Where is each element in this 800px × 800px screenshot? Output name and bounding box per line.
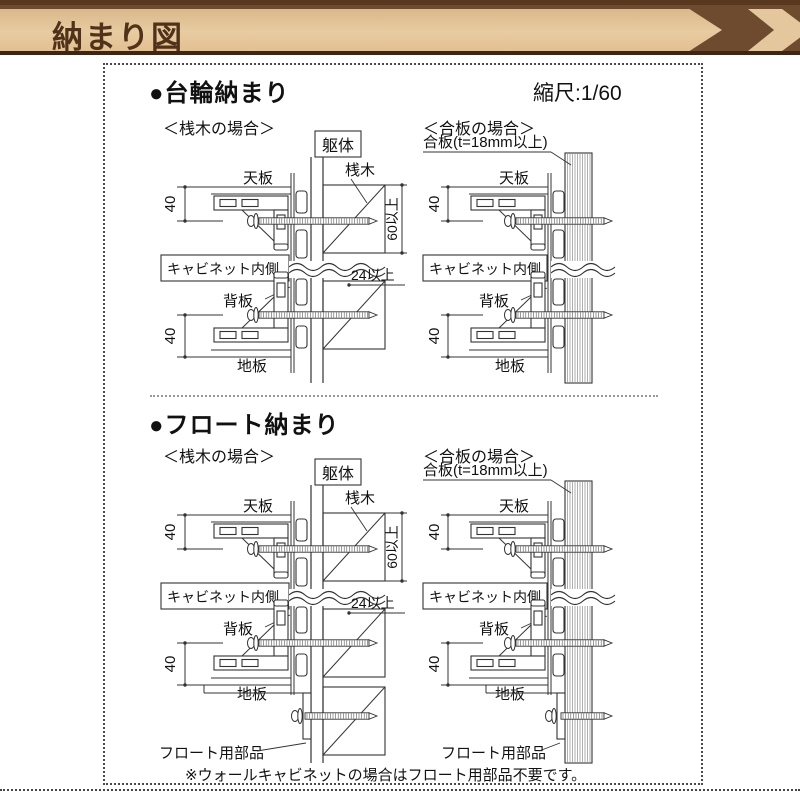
diagram-label: 60以上 — [384, 525, 400, 569]
diagram-label: キャビネット内側 — [429, 589, 541, 605]
plywood-wall — [565, 481, 592, 763]
top-panel: 天板 — [469, 497, 548, 522]
diagram-label: 天板 — [243, 169, 273, 187]
diagram-label: 躯体 — [322, 137, 354, 155]
bottom-panel: 地板 — [469, 678, 548, 703]
diagram-label: フロート用部品 — [159, 745, 264, 762]
diagram-label: 天板 — [499, 169, 529, 187]
diagram-label: 天板 — [243, 497, 273, 515]
diagram-label: 背板 — [479, 292, 509, 310]
diagram-label: キャビネット内側 — [167, 261, 279, 277]
top-panel: 天板 — [211, 497, 291, 522]
section-heading-float: ●フロート納まり — [149, 405, 340, 440]
screw — [248, 308, 378, 323]
diagram-label: フロート用部品 — [441, 745, 546, 762]
diagram-label: 地板 — [237, 357, 267, 375]
bottom-panel: 地板 — [211, 350, 291, 375]
float-part: フロート用部品 — [441, 685, 612, 762]
cabinet-inside-box: キャビネット内側 — [161, 583, 289, 609]
drawing-panel: ●台輪納まり 縮尺:1/60 ＜桟木の場合＞ ＜合板の場合＞ 天板40キャビネッ… — [103, 63, 703, 785]
banner-ribbon-arrow: 納まり図 — [0, 9, 722, 51]
kutai-box: 躯体 — [315, 131, 361, 157]
diagram-daiwa-gohan: 天板40キャビネット内側背板地板40合板(t=18mm以上) — [421, 129, 693, 387]
float-part: フロート用部品 — [159, 685, 377, 762]
diagram-label: 背板 — [479, 620, 509, 638]
header-banner: 納まり図 — [0, 0, 800, 55]
top-panel: 天板 — [211, 169, 291, 194]
diagram-label: 60以上 — [384, 197, 400, 241]
diagram-label: キャビネット内側 — [167, 589, 279, 605]
diagram-label: 桟木 — [345, 162, 375, 179]
diagram-label: 天板 — [499, 497, 529, 515]
wall-frame — [311, 485, 323, 763]
screw — [505, 636, 613, 651]
diagram-label: 躯体 — [322, 465, 354, 483]
diagram-label: 地板 — [495, 685, 525, 703]
cabinet-inside-box: キャビネット内側 — [161, 255, 289, 281]
top-panel: 天板 — [469, 169, 548, 194]
diagram-label: 40 — [162, 196, 179, 213]
cabinet-inside-box: キャビネット内側 — [423, 255, 547, 281]
bottom-panel: 地板 — [469, 350, 548, 375]
screw — [505, 542, 613, 557]
diagram-label: 40 — [426, 328, 443, 345]
screw — [505, 308, 613, 323]
diagram-label: 40 — [426, 196, 443, 213]
cabinet-inside-box: キャビネット内側 — [423, 583, 547, 609]
diagram-float-gohan: 天板40キャビネット内側背板地板40フロート用部品合板(t=18mm以上) — [421, 457, 693, 767]
diagram-label: 合板(t=18mm以上) — [423, 133, 548, 151]
diagram-label: 40 — [162, 328, 179, 345]
kutai-box: 躯体 — [315, 459, 361, 485]
diagram-float-sangi: 天板40キャビネット内側24以上背板地板40フロート用部品躯体桟木60以上 — [139, 457, 411, 767]
banner-chevron-icon — [748, 9, 800, 51]
screw — [546, 709, 613, 724]
diagram-label: 合板(t=18mm以上) — [423, 461, 548, 479]
diagram-label: 背板 — [223, 620, 253, 638]
screw — [505, 214, 613, 229]
diagram-label: 40 — [426, 656, 443, 673]
section-divider — [150, 395, 658, 397]
batten-block — [323, 687, 385, 755]
diagram-daiwa-sangi: 天板40キャビネット内側24以上背板地板40躯体桟木60以上 — [139, 129, 411, 387]
back-panel — [548, 501, 551, 695]
diagram-label: 地板 — [237, 685, 267, 703]
screw — [248, 636, 378, 651]
footnote: ※ウォールキャビネットの場合はフロート用部品不要です。 — [185, 764, 586, 785]
bottom-panel: 地板 — [211, 678, 291, 703]
diagram-label: 地板 — [495, 357, 525, 375]
bottom-dotted-rule — [0, 789, 800, 791]
diagram-label: 桟木 — [345, 490, 375, 507]
scale-note: 縮尺:1/60 — [533, 77, 622, 107]
diagram-label: 40 — [162, 524, 179, 541]
diagram-label: 24以上 — [351, 595, 395, 611]
diagram-label: 40 — [162, 656, 179, 673]
diagram-label: 背板 — [223, 292, 253, 310]
page-title: 納まり図 — [52, 12, 184, 57]
diagram-label: キャビネット内側 — [429, 261, 541, 277]
back-panel — [548, 173, 551, 373]
diagram-label: 24以上 — [351, 267, 395, 283]
diagram-label: 40 — [426, 524, 443, 541]
section-heading-daiwa: ●台輪納まり — [149, 73, 290, 108]
